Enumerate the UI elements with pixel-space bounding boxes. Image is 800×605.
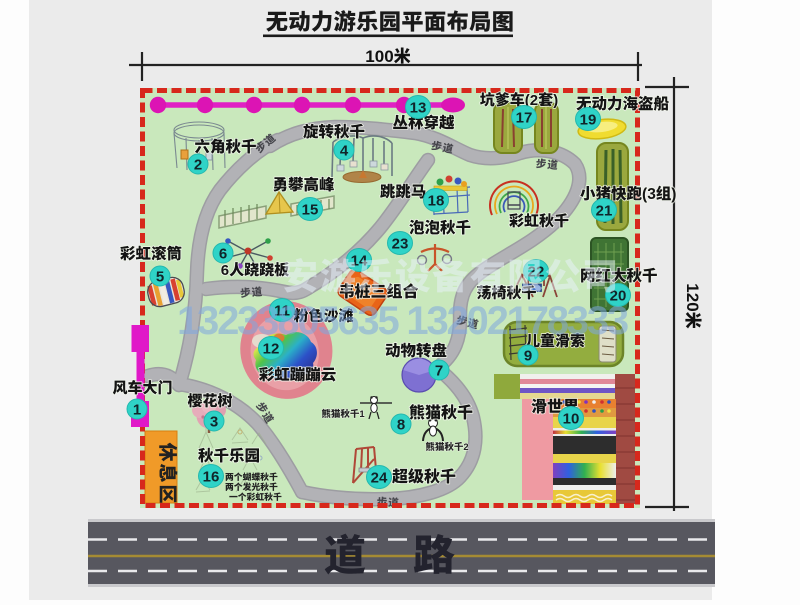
svg-text:): ) — [553, 92, 558, 109]
svg-text:1: 1 — [359, 409, 365, 420]
svg-text:0: 0 — [375, 47, 384, 66]
svg-text:13: 13 — [410, 100, 427, 117]
svg-text:): ) — [671, 186, 676, 203]
svg-text:10: 10 — [563, 411, 580, 428]
svg-text:2: 2 — [683, 293, 702, 302]
svg-text:4: 4 — [340, 143, 349, 160]
svg-text:12: 12 — [263, 341, 280, 358]
svg-text:24: 24 — [371, 470, 388, 487]
svg-text:8: 8 — [397, 417, 405, 434]
svg-text:23: 23 — [392, 236, 409, 253]
svg-text:21: 21 — [596, 203, 613, 220]
svg-text:19: 19 — [580, 112, 597, 129]
svg-text:3: 3 — [210, 414, 218, 431]
svg-text:15: 15 — [302, 202, 319, 219]
svg-text:2: 2 — [530, 92, 538, 109]
svg-text:1: 1 — [133, 402, 141, 419]
svg-text:0: 0 — [683, 302, 702, 311]
svg-text:16: 16 — [203, 469, 220, 486]
svg-text:5: 5 — [156, 269, 164, 286]
svg-text:18: 18 — [428, 193, 445, 210]
svg-text:2: 2 — [194, 157, 202, 174]
svg-text:6: 6 — [219, 246, 227, 263]
svg-text:1: 1 — [683, 283, 702, 292]
svg-text:1: 1 — [365, 47, 374, 66]
svg-text:2: 2 — [463, 442, 468, 453]
svg-text:6: 6 — [221, 262, 229, 279]
svg-text:0: 0 — [384, 47, 393, 66]
svg-text:17: 17 — [516, 110, 533, 127]
svg-text:13233805635 13202178333: 13233805635 13202178333 — [177, 299, 628, 343]
svg-text:3: 3 — [647, 186, 656, 203]
svg-text:9: 9 — [524, 348, 532, 365]
svg-text:7: 7 — [435, 363, 443, 380]
